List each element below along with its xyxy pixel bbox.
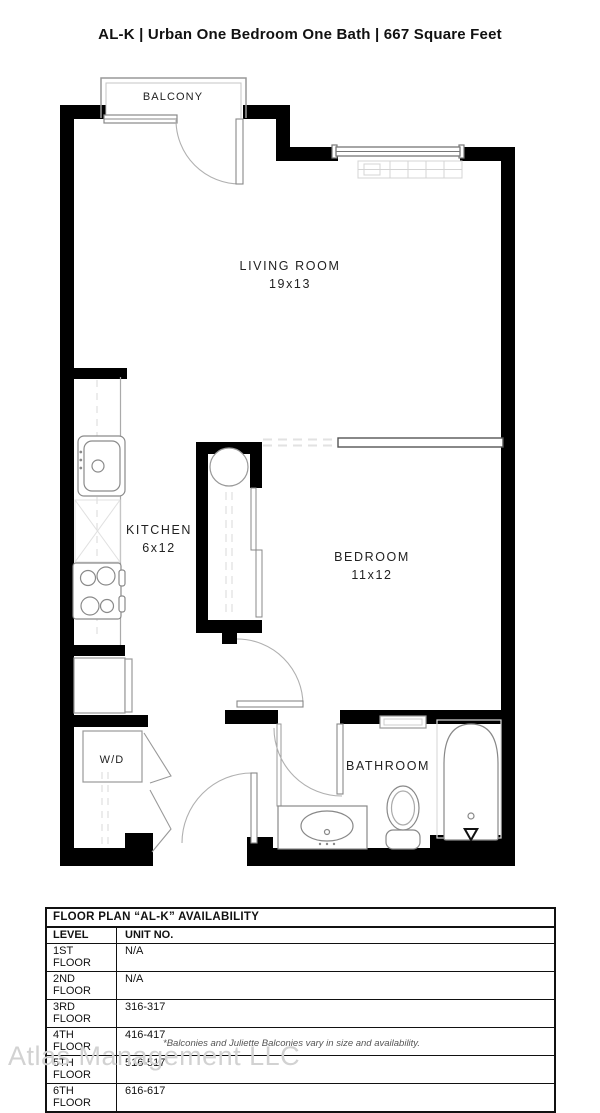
- kitchen-sink: [78, 436, 125, 496]
- wall-niche: [380, 716, 426, 728]
- bathroom-vanity: [278, 806, 367, 849]
- unit-cell: 316-317: [117, 1000, 554, 1027]
- wall-right: [501, 147, 515, 860]
- table-row: 6TH FLOOR 616-617: [47, 1084, 554, 1111]
- table-row: 3RD FLOOR 316-317: [47, 1000, 554, 1028]
- unit-cell: 616-617: [117, 1084, 554, 1111]
- entry-door-leaf: [251, 773, 257, 843]
- partitions: [97, 377, 503, 838]
- entry-door-swing: [182, 773, 252, 843]
- wall-hinge-pier: [222, 630, 237, 644]
- kitchen-label: KITCHEN: [126, 523, 192, 537]
- toilet: [386, 786, 420, 849]
- bedroom-partition-wall: [338, 438, 503, 447]
- wall-closet-left: [196, 442, 208, 633]
- living-room-dims: 19x13: [269, 277, 311, 291]
- bathroom-label: BATHROOM: [346, 759, 430, 773]
- refrigerator: [74, 658, 132, 713]
- floor-plan: BALCONY LIVING ROOM 19x13 KITCHEN 6x12 B…: [0, 0, 600, 900]
- kitchen-fixtures: [73, 436, 132, 713]
- column-header-level: LEVEL: [47, 928, 117, 943]
- kitchen-dims: 6x12: [142, 541, 176, 555]
- table-row: 2ND FLOOR N/A: [47, 972, 554, 1000]
- wall-bottom-left: [60, 848, 153, 866]
- bathroom-left-thin-wall: [277, 724, 281, 806]
- wall-left: [60, 105, 74, 866]
- wall-kitchen-mid-stub: [68, 645, 125, 656]
- unit-cell: N/A: [117, 944, 554, 971]
- availability-table: FLOOR PLAN “AL-K” AVAILABILITY LEVEL UNI…: [45, 907, 556, 1113]
- sliding-panel-2: [256, 550, 262, 617]
- column-header-unit: UNIT NO.: [117, 928, 554, 943]
- balcony-door-swing: [176, 120, 240, 184]
- living-room-label: LIVING ROOM: [240, 259, 341, 273]
- availability-table-title: FLOOR PLAN “AL-K” AVAILABILITY: [47, 909, 554, 928]
- bedroom-door-swing: [237, 639, 303, 705]
- bathroom-fixtures: [278, 716, 498, 849]
- unit-cell: N/A: [117, 972, 554, 999]
- level-cell: 6TH FLOOR: [47, 1084, 117, 1111]
- wall-kitchen-top-stub: [68, 368, 127, 379]
- baseboard-heater: [358, 161, 462, 178]
- balcony-label: BALCONY: [143, 91, 203, 103]
- wall-bedroom-bottom-a: [225, 710, 278, 724]
- wall-top-a: [60, 105, 106, 119]
- wall-bedroom-bottom-b: [340, 710, 515, 724]
- stove: [73, 563, 125, 619]
- bedroom-door-leaf: [237, 701, 303, 707]
- level-cell: 2ND FLOOR: [47, 972, 117, 999]
- bathroom-door-leaf: [337, 724, 343, 794]
- bathroom-door-swing: [274, 728, 342, 796]
- wall-closet-stub: [250, 442, 262, 488]
- company-watermark: Atlas Management LLC: [8, 1041, 300, 1072]
- balcony-door-leaf: [236, 119, 243, 184]
- availability-table-header: LEVEL UNIT NO.: [47, 928, 554, 944]
- bathtub: [444, 724, 498, 842]
- table-row: 1ST FLOOR N/A: [47, 944, 554, 972]
- closet-circle: [210, 448, 248, 486]
- level-cell: 3RD FLOOR: [47, 1000, 117, 1027]
- wall-laundry-top: [68, 715, 148, 727]
- washer-dryer-label: W/D: [100, 754, 125, 766]
- bedroom-label: BEDROOM: [334, 550, 410, 564]
- bedroom-dims: 11x12: [351, 568, 392, 582]
- wall-top-c: [276, 147, 338, 161]
- wall-entry-pier-left: [125, 833, 153, 849]
- level-cell: 1ST FLOOR: [47, 944, 117, 971]
- sliding-panel-1: [251, 488, 256, 550]
